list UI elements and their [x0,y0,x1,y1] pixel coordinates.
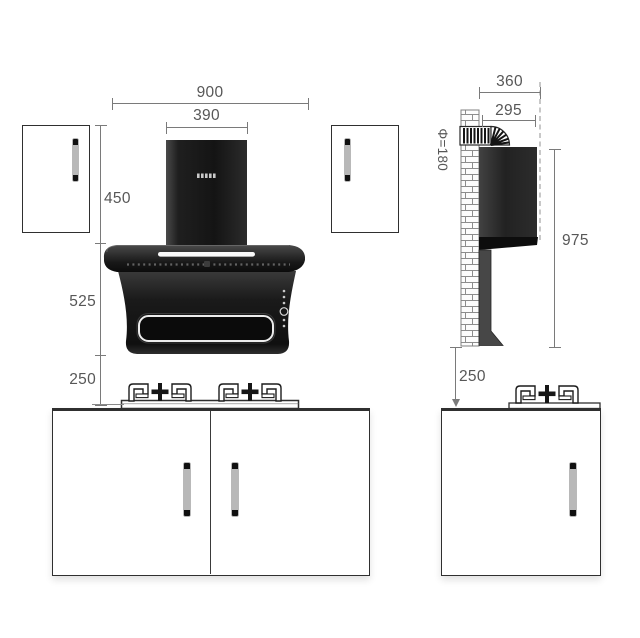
dim-tick-525-250 [95,355,106,356]
base-cabinet-side [441,408,601,576]
side-view [460,82,540,346]
dim-line-hood-depth [482,120,535,121]
glass-panel [139,316,273,341]
dim-label-install-height: 975 [562,233,589,249]
dim-arrow-countertop-offset [452,399,460,407]
dim-label-hood-to-countertop: 250 [66,372,96,388]
flex-duct-elbow [460,127,510,146]
hood-side-body [479,147,537,238]
dim-line-install-height [554,149,555,347]
hood-side-canopy-edge [479,237,538,250]
wall-cabinet-left [22,125,90,233]
burner-side [516,385,578,403]
dim-label-hood-height: 525 [66,294,96,310]
dim-label-duct-diameter: Φ=180 [435,128,449,172]
hood-side-wall-bracket [479,250,503,346]
gas-cooktop-front [122,383,299,409]
gas-cooktop-side [509,385,600,409]
dim-label-hood-depth: 295 [482,103,535,119]
dim-line-left-heights [100,125,101,405]
dim-line-overall-width [112,103,308,104]
dim-label-wall-cabinet-height: 450 [104,191,131,207]
dim-line-countertop-offset [455,347,456,400]
base-cabinet-door-divider [210,411,211,574]
burner-right [219,383,281,401]
dim-line-overall-depth [479,92,540,93]
base-cabinet-front [52,408,370,576]
wall-cabinet-right-handle [345,139,350,181]
base-cabinet-left-door-handle [184,463,190,516]
base-cabinet-right-door-handle [232,463,238,516]
wall-cabinet-right [331,125,399,233]
dim-line-flue-width [166,127,247,128]
hood-flue-chimney [166,140,247,246]
range-hood-front [104,140,305,354]
installation-diagram: 900 390 450 525 250 360 295 Φ=180 975 25… [0,0,640,638]
burner-left [129,383,191,401]
vent-center-notch [204,261,210,267]
countertop-extension-line [92,404,124,405]
dim-label-flue-width: 390 [166,108,247,124]
base-cabinet-side-handle [570,463,576,516]
dim-label-countertop-offset: 250 [459,369,486,385]
dim-label-overall-width: 900 [112,85,308,101]
dim-label-overall-depth: 360 [479,74,540,90]
hood-top-canopy [104,245,305,272]
dim-tick-450-525 [95,243,106,244]
hood-light-strip [158,252,255,257]
wall-cabinet-left-handle [73,139,78,181]
